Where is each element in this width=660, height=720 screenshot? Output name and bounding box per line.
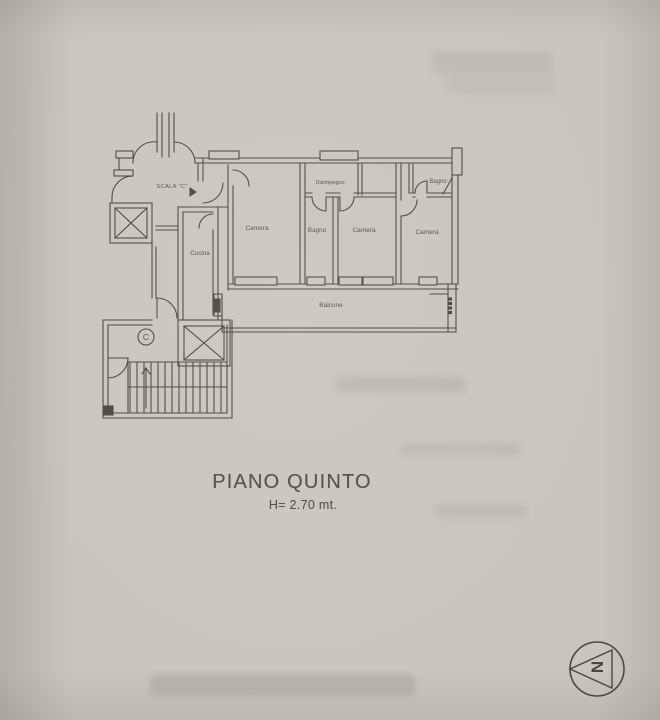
bedroom-2-door-arc xyxy=(340,197,354,211)
bathroom-1-door-arc xyxy=(312,197,326,211)
stairwell-label: SCALA "C" xyxy=(156,184,187,190)
dimension-marks xyxy=(449,298,452,300)
north-compass-icon: N xyxy=(570,642,624,696)
east-wall xyxy=(452,175,458,284)
hallway-walls xyxy=(305,163,396,211)
window xyxy=(452,148,462,175)
chimney-flue xyxy=(157,113,174,157)
stairwell-block xyxy=(103,320,232,418)
elevator-1-shaft xyxy=(110,203,152,243)
scanned-floor-plan-page: SCALA "C" C Cucina Camera Disimpegno Bag… xyxy=(0,0,660,720)
bedroom-3-door-arc xyxy=(401,200,417,216)
bathroom-2-door-arc xyxy=(415,181,427,193)
french-window xyxy=(419,277,437,285)
room-label-camera-2: Camera xyxy=(352,227,376,234)
french-window xyxy=(235,277,277,285)
french-window xyxy=(363,277,393,285)
stairwell-door-arc xyxy=(108,358,128,378)
ceiling-height-note: H= 2.70 mt. xyxy=(173,498,433,512)
structural-pillar xyxy=(104,406,113,415)
north-wall xyxy=(205,148,462,175)
entry-door-arc xyxy=(203,183,223,203)
service-corridor xyxy=(152,207,183,320)
compass-north-label: N xyxy=(588,661,607,673)
room-label-disimpegno: Disimpegno xyxy=(315,180,344,186)
window xyxy=(320,151,358,160)
stairs-up-arrow xyxy=(142,368,150,408)
room-label-bagno-1: Bagno xyxy=(308,227,327,234)
room-label-balcone: Balcone xyxy=(319,302,343,309)
corridor-door-arc xyxy=(157,298,177,318)
floor-plan-drawing: SCALA "C" C Cucina Camera Disimpegno Bag… xyxy=(0,0,660,720)
room-label-camera-3: Camera xyxy=(415,229,439,236)
sconce-icon xyxy=(190,188,196,196)
french-window xyxy=(307,277,325,285)
landing-left-door-arc xyxy=(112,176,133,197)
window xyxy=(209,151,239,159)
bedroom-3-wall xyxy=(396,163,417,284)
room-label-cucina: Cucina xyxy=(190,250,210,257)
room-label-bagno-2: Bagno xyxy=(429,179,447,185)
floor-title: PIANO QUINTO xyxy=(162,471,422,494)
elevator-2-shaft xyxy=(178,320,230,366)
bedroom-1-door-arc xyxy=(233,170,249,186)
staircase xyxy=(128,362,227,412)
bathroom-1-wall xyxy=(333,197,338,284)
core-c-label: C xyxy=(143,332,149,342)
kitchen-door-arc xyxy=(199,214,213,228)
room-label-camera-1: Camera xyxy=(245,225,269,232)
french-window xyxy=(339,277,362,285)
south-wall xyxy=(228,277,458,289)
